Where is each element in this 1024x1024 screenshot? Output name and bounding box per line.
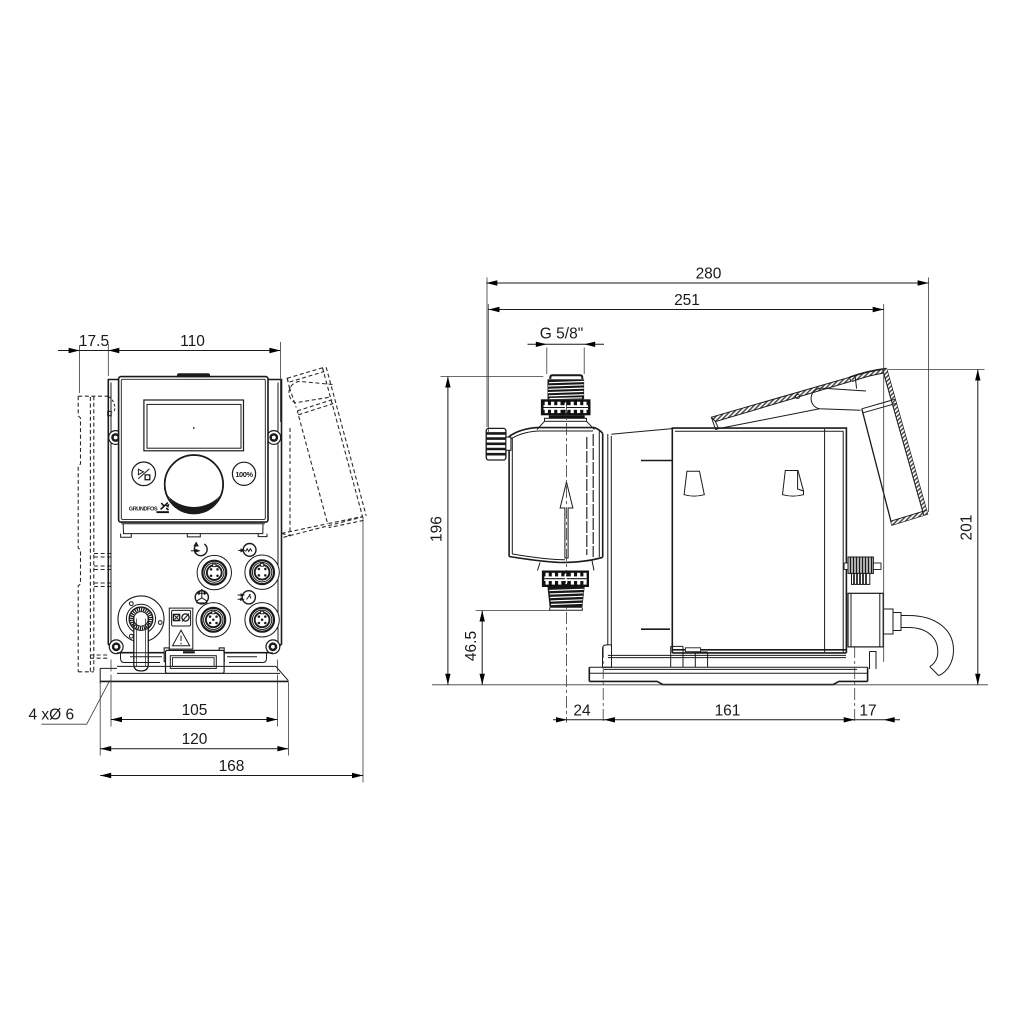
svg-text:105: 105 (182, 702, 208, 719)
svg-text:251: 251 (674, 292, 700, 309)
svg-text:4 xØ 6: 4 xØ 6 (29, 707, 75, 724)
svg-text:100%: 100% (235, 470, 253, 479)
svg-text:G 5/8": G 5/8" (540, 326, 583, 343)
svg-text:17.5: 17.5 (79, 333, 109, 350)
svg-text:168: 168 (219, 758, 245, 775)
svg-text:110: 110 (180, 333, 205, 350)
svg-text:201: 201 (959, 515, 976, 541)
svg-text:24: 24 (573, 702, 591, 719)
svg-text:GRUNDFOS: GRUNDFOS (129, 507, 158, 513)
svg-text:17: 17 (859, 702, 876, 719)
svg-text:120: 120 (182, 731, 208, 748)
svg-text:46.5: 46.5 (463, 631, 480, 661)
svg-text:280: 280 (696, 266, 722, 283)
svg-text:196: 196 (429, 516, 446, 542)
svg-text:161: 161 (715, 702, 741, 719)
